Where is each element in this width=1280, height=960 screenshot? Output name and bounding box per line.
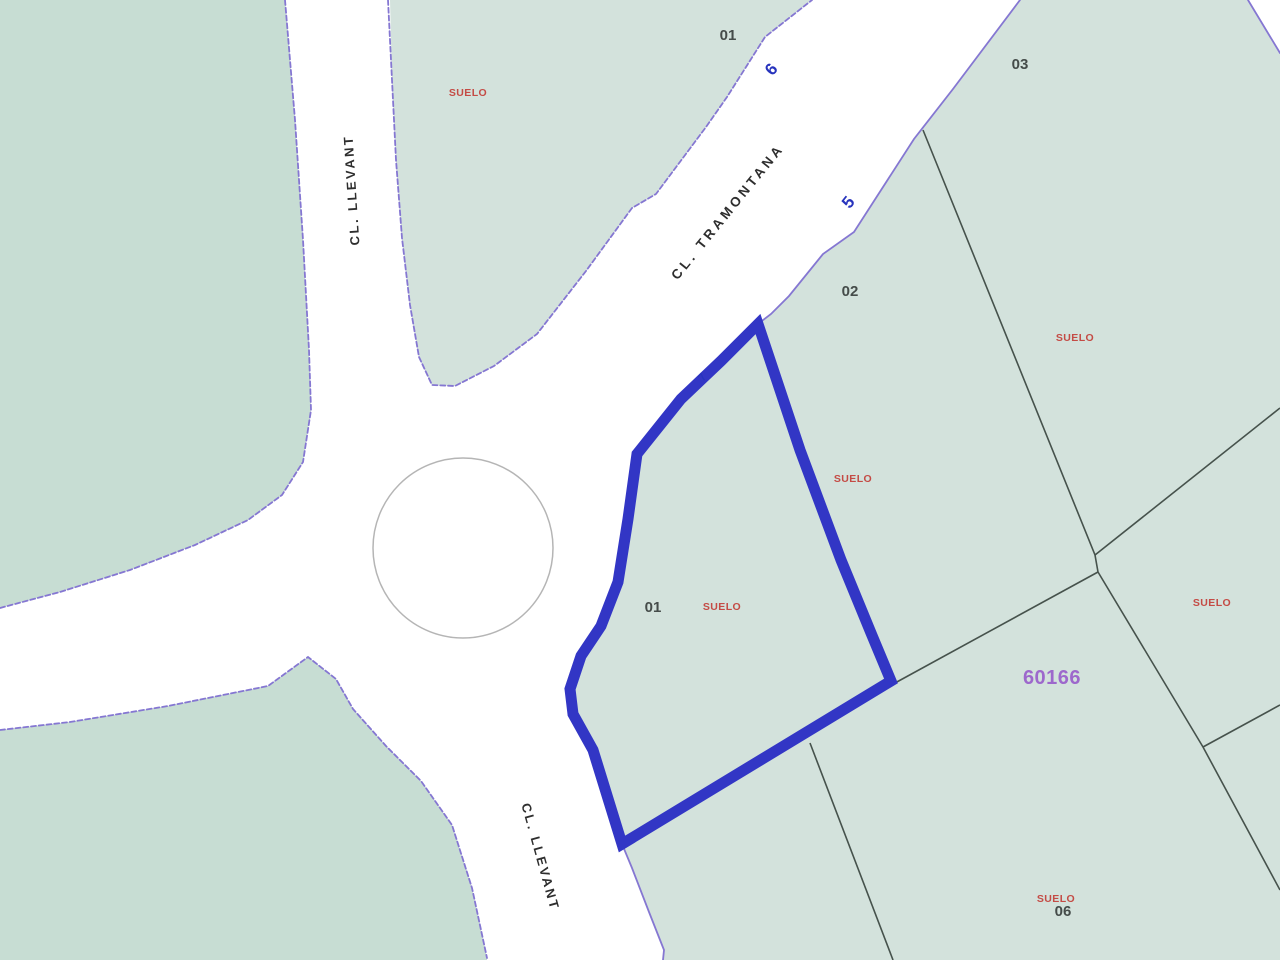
parcel-number-03: 03 bbox=[1012, 56, 1029, 73]
parcel-number-01-top: 01 bbox=[720, 27, 737, 44]
suelo-label-right: SUELO bbox=[1193, 597, 1231, 609]
suelo-label-highlighted: SUELO bbox=[703, 601, 741, 613]
cadastral-map: SUELO 01 03 6 5 7 CL. TRAMONTANA CL. LLE… bbox=[0, 0, 1280, 960]
block-reference-label: 60166 bbox=[1023, 667, 1081, 689]
parcel-number-02: 02 bbox=[842, 283, 859, 300]
suelo-label-parcel-03: SUELO bbox=[1056, 332, 1094, 344]
suelo-label-parcel-02: SUELO bbox=[834, 473, 872, 485]
cadastral-map-canvas[interactable]: SUELO 01 03 6 5 7 CL. TRAMONTANA CL. LLE… bbox=[0, 0, 1280, 960]
suelo-label-top-left: SUELO bbox=[449, 87, 487, 99]
roundabout-circle bbox=[373, 458, 553, 638]
parcel-number-06: 06 bbox=[1055, 903, 1072, 920]
parcel-number-01-highlighted: 01 bbox=[645, 599, 662, 616]
